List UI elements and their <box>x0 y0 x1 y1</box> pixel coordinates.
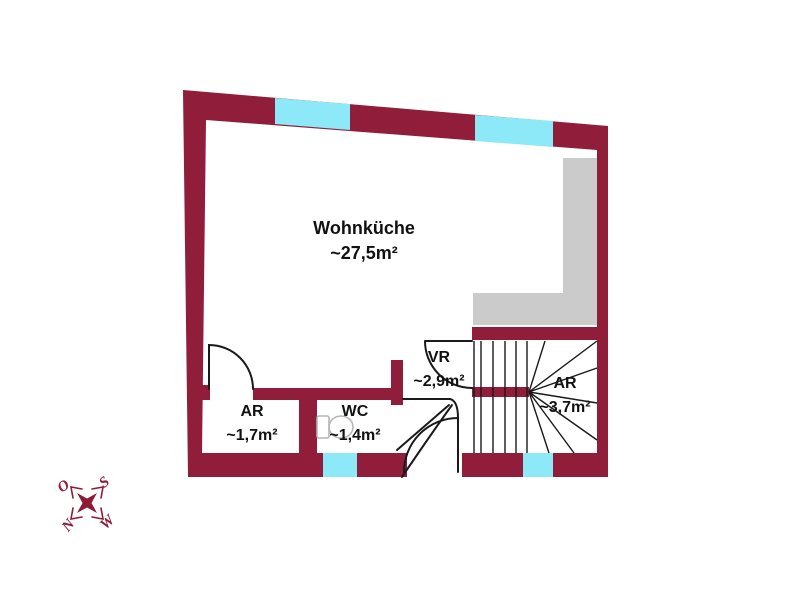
compass-rose <box>71 487 103 519</box>
room-area: ~3,7m² <box>539 396 590 420</box>
room-name: WC <box>329 400 380 424</box>
compass-star <box>77 493 97 513</box>
room-area: ~1,7m² <box>226 424 277 448</box>
room-label-ar-left: AR ~1,7m² <box>226 400 277 448</box>
floor-plan-drawing <box>0 0 790 600</box>
room-name: VR <box>413 346 464 370</box>
room-area: ~27,5m² <box>313 241 415 266</box>
room-name: AR <box>226 400 277 424</box>
floor-plan-page: Wohnküche ~27,5m² AR ~1,7m² WC ~1,4m² VR… <box>0 0 790 600</box>
room-label-wc: WC ~1,4m² <box>329 400 380 448</box>
ar-wc-divider-wall <box>299 388 317 453</box>
room-label-wohnkueche: Wohnküche ~27,5m² <box>313 216 415 266</box>
ar-wc-top-wall <box>253 388 395 400</box>
stair-top-wall <box>472 327 608 340</box>
toilet-tank <box>317 416 329 438</box>
room-label-ar-stairs: AR ~3,7m² <box>539 372 590 420</box>
window-bottom-right <box>523 453 553 477</box>
room-label-vr: VR ~2,9m² <box>413 346 464 394</box>
room-area: ~2,9m² <box>413 370 464 394</box>
window-bottom-left <box>323 453 357 477</box>
vr-wall-stub <box>391 360 403 405</box>
room-name: Wohnküche <box>313 216 415 241</box>
room-name: AR <box>539 372 590 396</box>
room-area: ~1,4m² <box>329 424 380 448</box>
